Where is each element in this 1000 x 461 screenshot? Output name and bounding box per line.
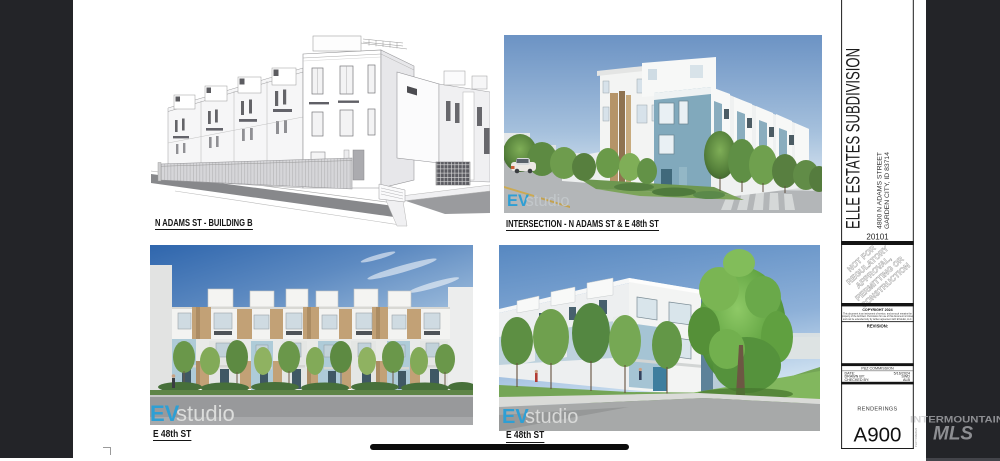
svg-text:and can be extended only by wr: and can be extended only by written agre…: [843, 318, 912, 321]
svg-text:4800 N ADAMS STREET: 4800 N ADAMS STREET: [877, 152, 884, 229]
svg-text:COPYRIGHT 2024: COPYRIGHT 2024: [862, 308, 892, 312]
svg-text:P&Z COMMISSION: P&Z COMMISSION: [861, 367, 894, 371]
svg-text:GARDEN CITY, ID 83714: GARDEN CITY, ID 83714: [884, 151, 891, 229]
svg-text:studio: studio: [525, 406, 578, 428]
svg-text:A900: A900: [854, 424, 902, 447]
svg-text:This document is an instrument: This document is an instrument of servic…: [843, 313, 912, 316]
svg-text:studio: studio: [526, 192, 570, 210]
svg-text:ELLE ESTATES SUBDIVISION: ELLE ESTATES SUBDIVISION: [844, 48, 865, 229]
svg-text:ALB: ALB: [903, 378, 911, 382]
svg-text:CHECKED BY:: CHECKED BY:: [845, 378, 870, 382]
svg-text:studio: studio: [176, 401, 235, 425]
svg-text:property of the Architect. Per: property of the Architect. Permission fo…: [842, 315, 914, 318]
svg-text:REVISION:: REVISION:: [867, 323, 888, 328]
svg-text:RENDERINGS: RENDERINGS: [857, 407, 897, 413]
svg-text:20101: 20101: [866, 233, 889, 242]
svg-text:MLS: MLS: [933, 424, 973, 445]
